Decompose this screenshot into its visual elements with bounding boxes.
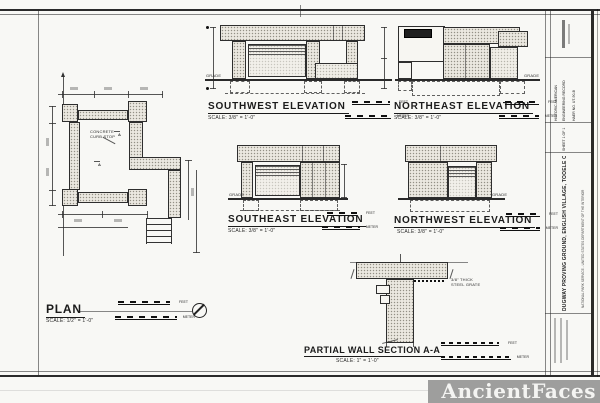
titleblock-sub-title: NATIONAL PARK SERVICE - UNITED STATES DE… — [581, 158, 588, 308]
dimension-tick — [185, 160, 192, 161]
drawing-sheet: GRADE GRADE GRADE — [0, 0, 600, 403]
northeast-elevation-scale: SCALE: 3/8" = 1'-0" — [394, 115, 441, 121]
foundation-dashed — [398, 81, 412, 91]
southwest-elevation-title: SOUTHWEST ELEVATION — [208, 101, 349, 114]
scale-bar-feet: FEET — [327, 212, 357, 216]
scale-bar-meter: METER — [500, 227, 540, 231]
slab-joint — [302, 145, 303, 162]
micro-dim-label — [114, 219, 122, 222]
plan-pier — [128, 101, 147, 122]
watermark-bar: AncientFaces — [428, 380, 600, 403]
low-wall — [398, 62, 412, 79]
plan-wall — [129, 157, 181, 170]
titleblock-credit-text — [566, 320, 568, 360]
titleblock-line — [545, 9, 546, 377]
masonry-joint — [325, 162, 326, 198]
titleblock-divider — [545, 152, 591, 153]
dimension-tick — [49, 205, 56, 206]
scale-bar-meter: METER — [115, 316, 177, 320]
plan-wall — [129, 122, 143, 158]
southeast-elevation-drawing: GRADE — [228, 140, 348, 213]
dimension-line — [58, 94, 163, 95]
dimension-tick — [193, 252, 200, 253]
slab-joint — [342, 25, 343, 41]
scale-bar-feet: FEET — [505, 101, 539, 105]
firebox-opening — [404, 29, 432, 38]
dimension-line — [188, 160, 189, 220]
scale-bar-meter: METER — [322, 226, 360, 230]
dimension-tick — [102, 211, 103, 218]
border-bottom-thick — [0, 375, 600, 377]
titleblock-sheet-number: SHEET 1 OF 1 — [562, 124, 569, 151]
scale-bar-meter: METER — [499, 115, 539, 119]
micro-dim-label — [74, 219, 82, 222]
foundation-dashed — [412, 81, 500, 96]
micro-dim-label — [104, 87, 112, 90]
titleblock-agency-line2: ENGINEERING RECORD — [562, 59, 568, 121]
plan-leader-line — [80, 311, 192, 312]
scale-bar-meter-label: METER — [546, 226, 558, 230]
scale-bar-feet-label: FEET — [508, 341, 517, 345]
sheet-right-edge — [597, 9, 598, 377]
dimension-tick — [381, 58, 387, 59]
section-marker-flag — [114, 131, 120, 132]
dimension-tick — [49, 123, 56, 124]
foundation-dashed-line — [240, 210, 340, 211]
titleblock-line — [550, 9, 551, 377]
dimension-tick — [381, 88, 387, 89]
dimension-tick — [49, 106, 56, 107]
pier — [476, 162, 492, 198]
cap-slab — [237, 145, 340, 162]
masonry-block — [490, 47, 518, 79]
plan-wall — [69, 122, 80, 190]
northwest-elevation-drawing: GRADE — [398, 140, 505, 213]
dimension-line — [58, 214, 148, 215]
scale-bar-feet-label: FEET — [366, 211, 375, 215]
titleblock-agency-line1: HISTORIC AMERICAN — [554, 59, 560, 121]
masonry-block — [408, 162, 448, 198]
cap-slab — [405, 145, 497, 162]
grade-label: GRADE — [206, 73, 221, 78]
scale-bar-feet: FEET — [118, 301, 170, 305]
southwest-elevation-scale: SCALE: 3/8" = 1'-0" — [208, 115, 255, 121]
scale-bar-feet-label: FEET — [179, 300, 188, 304]
plan-drawing: CONCRETE CURB STOP A A — [44, 78, 204, 258]
titleblock-credit-text — [560, 318, 562, 363]
foundation-dashed — [410, 200, 490, 212]
dimension-tick — [210, 27, 216, 28]
dimension-line — [52, 106, 53, 206]
section-marker-flag — [94, 161, 100, 162]
titleblock-heavy-border — [591, 9, 594, 377]
plan-scale: SCALE: 1/2" = 1'-0" — [46, 318, 93, 324]
cap-slab-step — [498, 31, 528, 47]
northeast-elevation-drawing: GRADE — [395, 18, 540, 98]
dimension-tick — [381, 27, 387, 28]
dimension-tick — [341, 164, 347, 165]
plan-wall — [168, 170, 181, 218]
micro-dim-label — [46, 138, 49, 146]
wall-notch — [376, 285, 390, 294]
micro-dim-label — [70, 87, 78, 90]
dimension-dot — [206, 26, 209, 29]
dimension-dot — [206, 87, 209, 90]
titleblock-divider — [545, 57, 591, 58]
border-center-tick — [300, 5, 301, 17]
watermark-text: AncientFaces — [441, 380, 600, 403]
foundation-dashed — [344, 81, 360, 93]
foundation-dashed-line — [225, 93, 365, 94]
plan-pier — [128, 189, 147, 206]
masonry-joint — [465, 44, 466, 79]
dimension-line — [196, 170, 197, 253]
dimension-tick — [49, 190, 56, 191]
plan-title: PLAN — [46, 302, 85, 318]
scale-bar-meter-label: METER — [517, 355, 529, 359]
plan-steps — [146, 218, 172, 244]
scale-bar-feet: FEET — [352, 101, 390, 105]
titleblock-index-number: HAER NO. UT-90-B — [572, 59, 578, 121]
section-marker-a: A — [98, 162, 101, 167]
titleblock-main-title: DUGWAY PROVING GROUND, ENGLISH VILLAGE, … — [562, 156, 576, 311]
wall-section-scale: SCALE: 1" = 1'-0" — [336, 358, 379, 364]
grate-note-line2: STEEL GRATE — [451, 282, 480, 287]
pier — [232, 41, 246, 79]
grill-louvers — [448, 166, 476, 198]
low-wall — [315, 63, 358, 79]
scale-bar-meter-label: METER — [366, 225, 378, 229]
dimension-tick — [62, 91, 63, 98]
dimension-tick — [94, 91, 95, 98]
dimension-tick — [62, 211, 63, 218]
border-bottom-thin — [0, 371, 600, 372]
wall-notch — [380, 295, 390, 304]
foundation-dashed — [230, 81, 250, 93]
foundation-dashed — [500, 81, 525, 94]
titleblock-divider — [545, 122, 591, 123]
scale-bar-meter: METER — [345, 115, 391, 119]
southeast-elevation-scale: SCALE: 3/8" = 1'-0" — [228, 228, 275, 234]
dimension-tick — [128, 91, 129, 98]
plan-wall — [78, 110, 128, 120]
slab-joint — [323, 145, 324, 162]
section-marker-a: A — [118, 132, 121, 137]
centerline-tick — [400, 254, 401, 262]
dimension-tick — [147, 211, 148, 218]
micro-dim-label — [140, 87, 148, 90]
dimension-line — [63, 76, 64, 106]
scan-line — [0, 390, 428, 391]
grade-label: GRADE — [492, 192, 507, 197]
foundation-dashed — [304, 81, 322, 93]
grill-louvers — [255, 165, 300, 196]
cap-slab — [220, 25, 365, 41]
plan-wall — [78, 192, 128, 203]
titleblock-stamp-mark — [568, 24, 570, 44]
masonry-joint — [312, 162, 313, 198]
section-slab — [356, 262, 448, 279]
titleblock-credit-text — [554, 318, 556, 363]
dimension-tick — [341, 197, 347, 198]
dimension-line — [58, 227, 128, 228]
titleblock-stamp-mark — [562, 20, 565, 48]
masonry-body — [443, 44, 490, 79]
scale-bar-feet: FEET — [506, 213, 540, 217]
slab-joint — [333, 25, 334, 41]
northwest-elevation-scale: SCALE: 3/8" = 1'-0" — [397, 229, 444, 235]
dimension-tick — [162, 91, 163, 98]
dimension-line — [344, 164, 345, 198]
southwest-elevation-drawing: GRADE — [205, 18, 392, 96]
border-left — [38, 9, 39, 377]
plan-pier — [62, 189, 78, 206]
scale-bar-feet: FEET — [441, 342, 499, 346]
slab-joint — [440, 145, 441, 162]
wall-section-drawing: 3/8" THICK STEEL GRATE — [350, 252, 472, 347]
break-mark — [350, 269, 354, 279]
grade-label: GRADE — [524, 73, 539, 78]
micro-dim-label — [46, 168, 49, 176]
dimension-tick — [210, 88, 216, 89]
scale-bar-meter: METER — [441, 356, 511, 360]
grill-louvers — [248, 44, 306, 77]
wall-section-title: PARTIAL WALL SECTION A-A — [304, 345, 443, 357]
micro-dim-label — [191, 188, 194, 196]
grade-label: GRADE — [229, 192, 244, 197]
masonry-block — [300, 162, 340, 198]
plan-pier — [62, 104, 78, 122]
north-arrow — [192, 303, 207, 318]
titleblock-divider — [545, 313, 591, 314]
section-wall — [386, 279, 414, 343]
